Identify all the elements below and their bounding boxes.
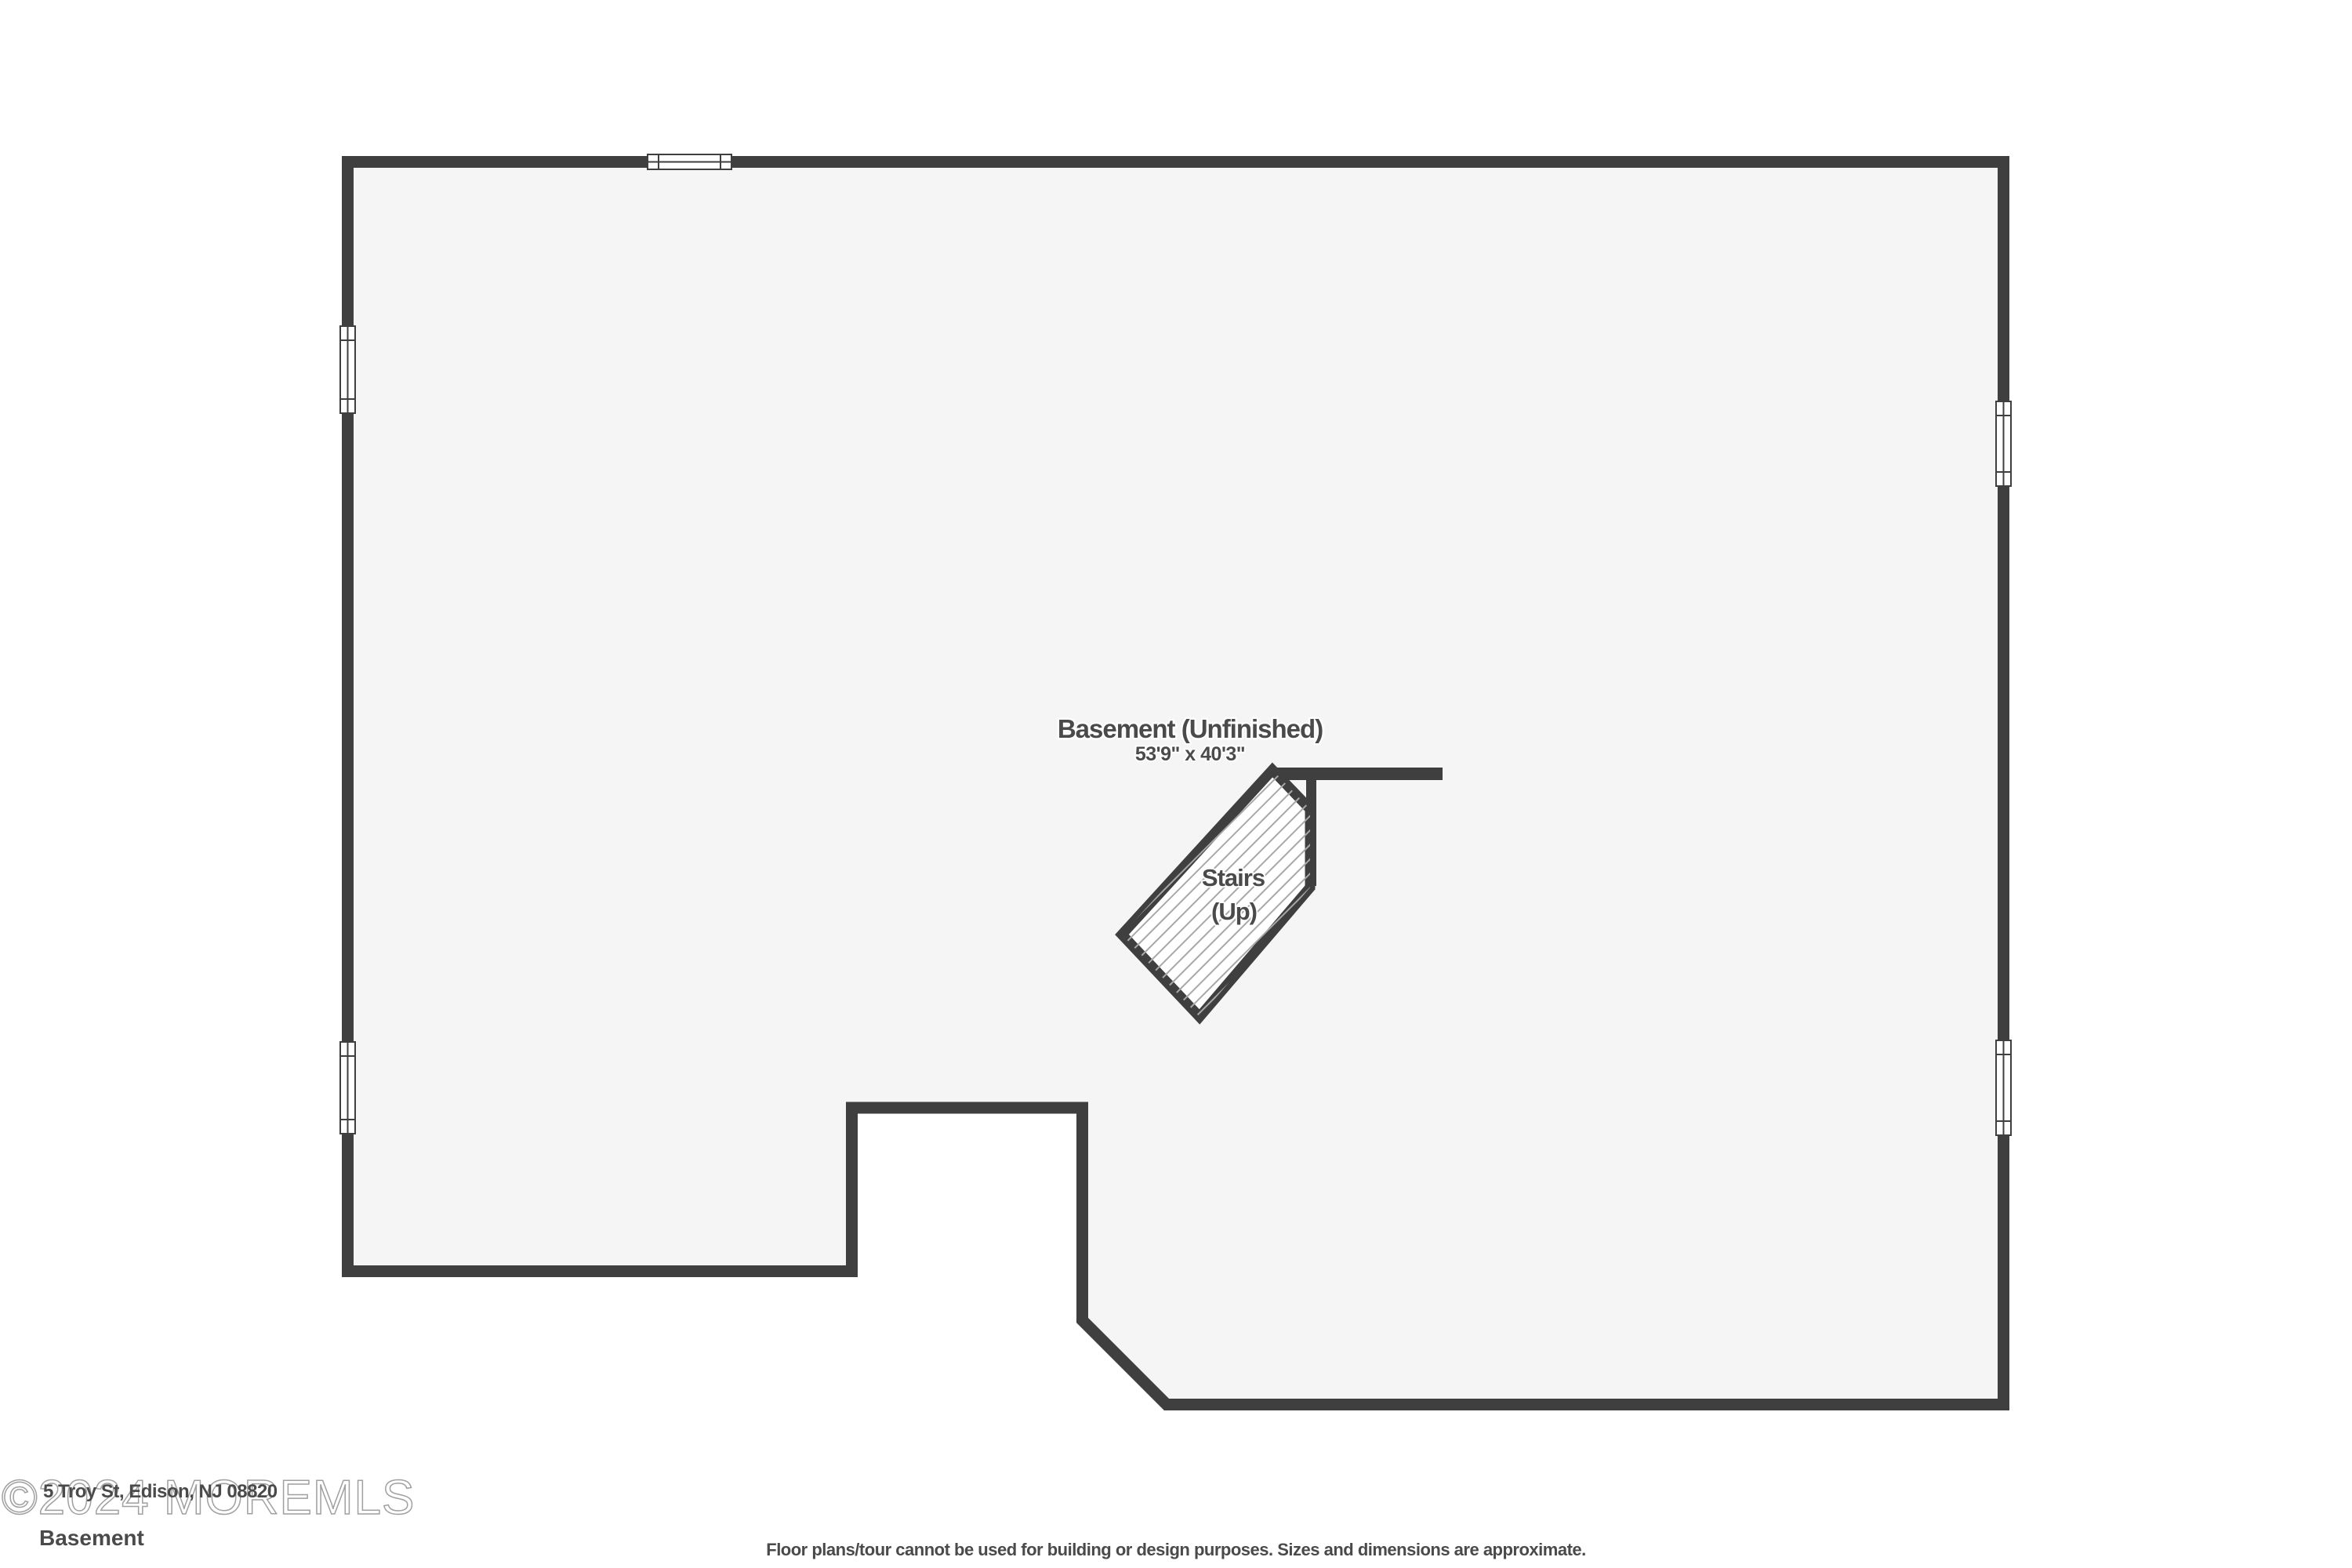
stairs-direction-label: (Up) [1211, 898, 1257, 925]
property-address: 5 Troy St, Edison, NJ 08820 [43, 1481, 278, 1502]
window-icon-left-1 [340, 326, 355, 413]
window-icon-right-1 [1996, 401, 2011, 486]
window-icon-right-2 [1996, 1040, 2011, 1135]
floor-plan-page: Basement (Unfinished) 53'9" x 40'3" Stai… [0, 0, 2352, 1568]
floor-name: Basement [39, 1526, 144, 1550]
stairs-label: Stairs [1202, 864, 1265, 891]
room-dimensions: 53'9" x 40'3" [1135, 743, 1245, 765]
disclaimer: Floor plans/tour cannot be used for buil… [766, 1540, 1586, 1559]
window-icon-top [648, 154, 731, 169]
floor-plan-svg: Basement (Unfinished) 53'9" x 40'3" Stai… [0, 0, 2352, 1568]
room-label: Basement (Unfinished) [1058, 714, 1323, 743]
basement-outline [348, 162, 2004, 1405]
window-icon-left-2 [340, 1042, 355, 1134]
